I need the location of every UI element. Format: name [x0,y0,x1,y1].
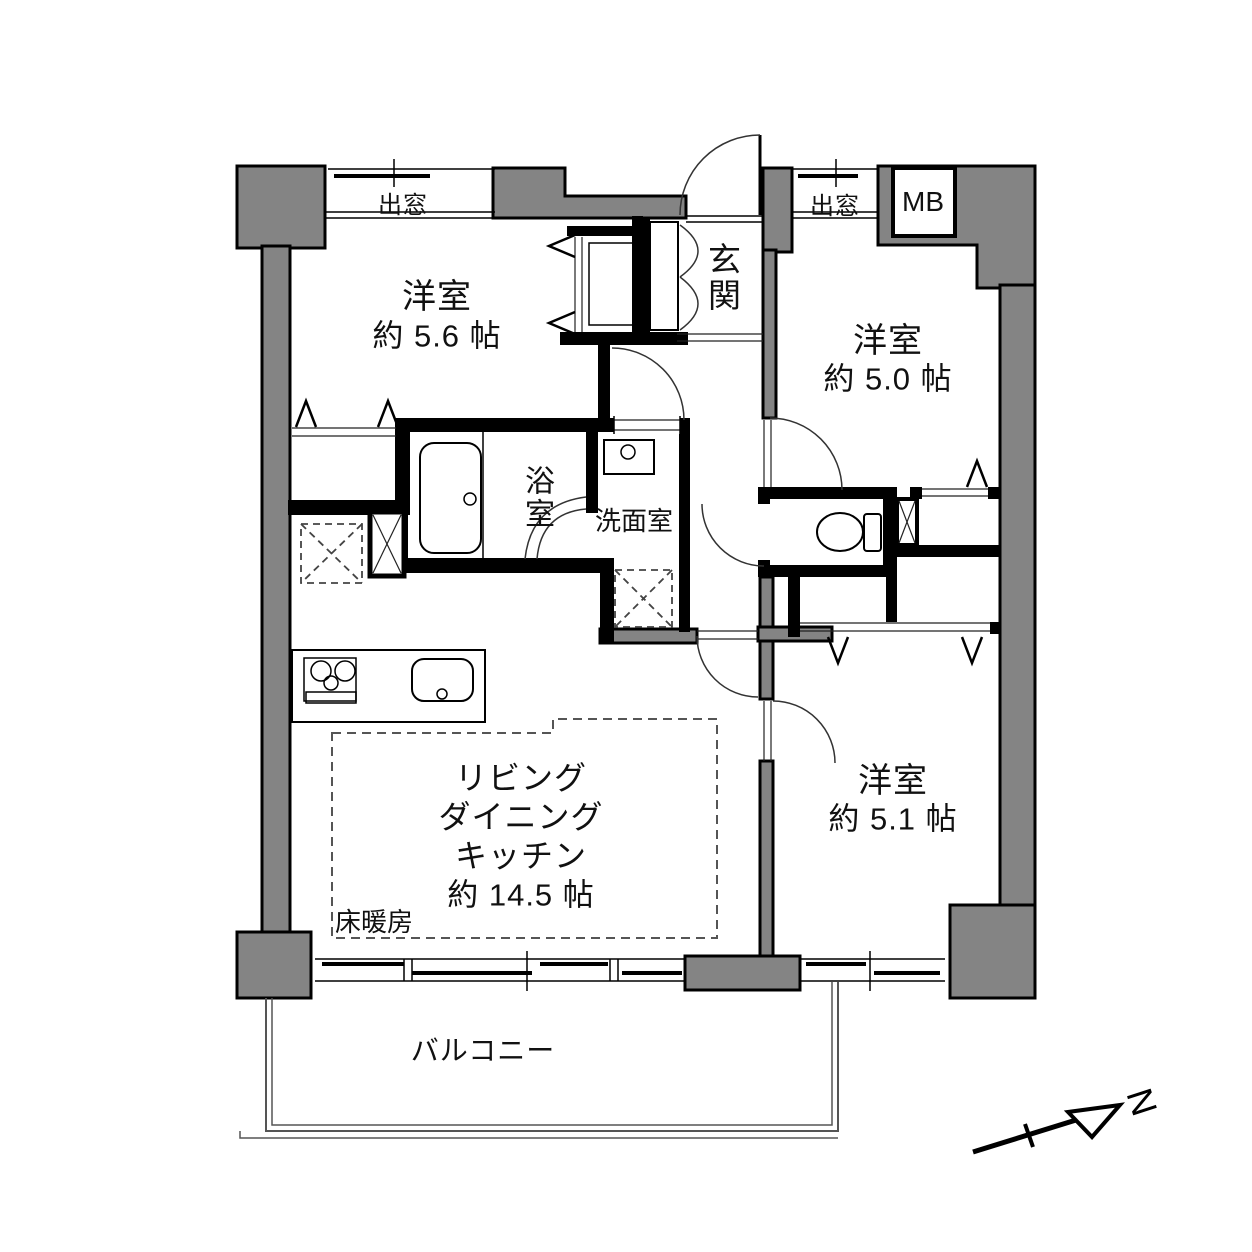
wall-bath-washroom-divider [586,418,598,513]
ldk-label-line1: リビング [455,762,587,794]
kitchen-counter [292,650,485,722]
wall-closet-b-left [788,577,800,637]
closet-arrow-down-icon [962,637,982,663]
wall-left [262,246,290,936]
wall-closet2-right [396,420,410,512]
wall-pillar-bottom-right [950,905,1035,998]
bathroom-label: 浴室 [521,465,551,531]
ldk-door [697,631,758,697]
room3-size: 約 5.1 帖 [828,804,957,835]
bay-window-right-label: 出窓 [810,195,860,219]
compass-arrowhead-icon [1068,1105,1120,1137]
wall-pillar-bottom-left [237,932,311,998]
ldk-label-line3: キッチン [455,840,587,872]
closet-room1-bottom [292,401,398,436]
wall-laundry-left [600,558,614,643]
closet-arrow-up-icon [296,401,316,427]
closet-arrow-up-icon [967,461,987,487]
ldk-window [315,951,685,991]
wall-under-closet1 [560,332,688,345]
shoe-cabinet [650,222,698,330]
floor-plan: N 出窓 出窓 MB 玄関 洋室 約 5.6 帖 洋室 約 5.0 帖 浴室 洗… [0,0,1252,1252]
wall-toilet-top [758,487,897,499]
compass: N [973,1083,1166,1152]
entrance-door [680,135,763,222]
toilet-door [702,504,764,566]
wall-top-center [493,168,686,218]
wall-closet-b-divider [886,557,897,622]
pipe-space-toilet [897,499,917,545]
entrance-label: 玄関 [706,242,739,314]
room3-window [800,951,945,991]
kitchen-sink [412,659,473,701]
refrigerator-space [301,524,362,583]
wall-corridor-right [763,250,776,418]
wall-shoebox-left [640,218,650,335]
wall-toilet-left-a [758,487,770,504]
wall-closet1-top [567,226,643,236]
wall-toilet-bottom [758,565,897,577]
room2-name: 洋室 [853,324,923,358]
room3-name: 洋室 [858,764,928,798]
closet-room1-side [549,235,637,334]
entrance-step-line [677,334,763,341]
wall-hall-left [598,345,610,432]
closet-room2 [922,461,988,496]
washing-machine-space [615,570,672,627]
floor-plan-drawing: N [0,0,1252,1252]
bathtub [420,432,483,558]
bay-window-left-label: 出窓 [378,194,428,218]
wall-washroom-right [679,432,690,632]
wall-ldk-room3-lower [760,761,773,961]
floor-heating-label: 床暖房 [335,909,413,935]
ldk-label-line2: ダイニング [438,801,603,833]
wall-entrance-jamb [763,168,792,252]
balcony-label: バルコニー [411,1037,555,1065]
room1-size: 約 5.6 帖 [372,321,501,352]
ldk-size: 約 14.5 帖 [447,880,595,911]
room1-name: 洋室 [402,280,472,314]
wall-south-stub [685,956,800,990]
washroom-vanity [604,440,654,474]
closet-arrow-left-icon [549,312,575,334]
wall-bath-bottom [395,558,612,573]
closet-arrow-left-icon [549,235,575,257]
washroom-label: 洗面室 [595,508,673,534]
wall-pillar-top-left [237,166,325,248]
room2-size: 約 5.0 帖 [823,364,952,395]
wall-closet-a-jamb-right [988,487,1000,499]
wall-right [1000,285,1035,909]
pipe-space-kitchen [370,512,404,576]
meter-box-label: MB [902,188,944,216]
room2-door [764,418,842,490]
toilet-fixture [817,513,881,551]
washroom-door [612,348,684,434]
wall-closet-b-jamb-right [990,622,1000,634]
room3-door [764,701,835,763]
compass-north-label: N [1118,1083,1165,1120]
